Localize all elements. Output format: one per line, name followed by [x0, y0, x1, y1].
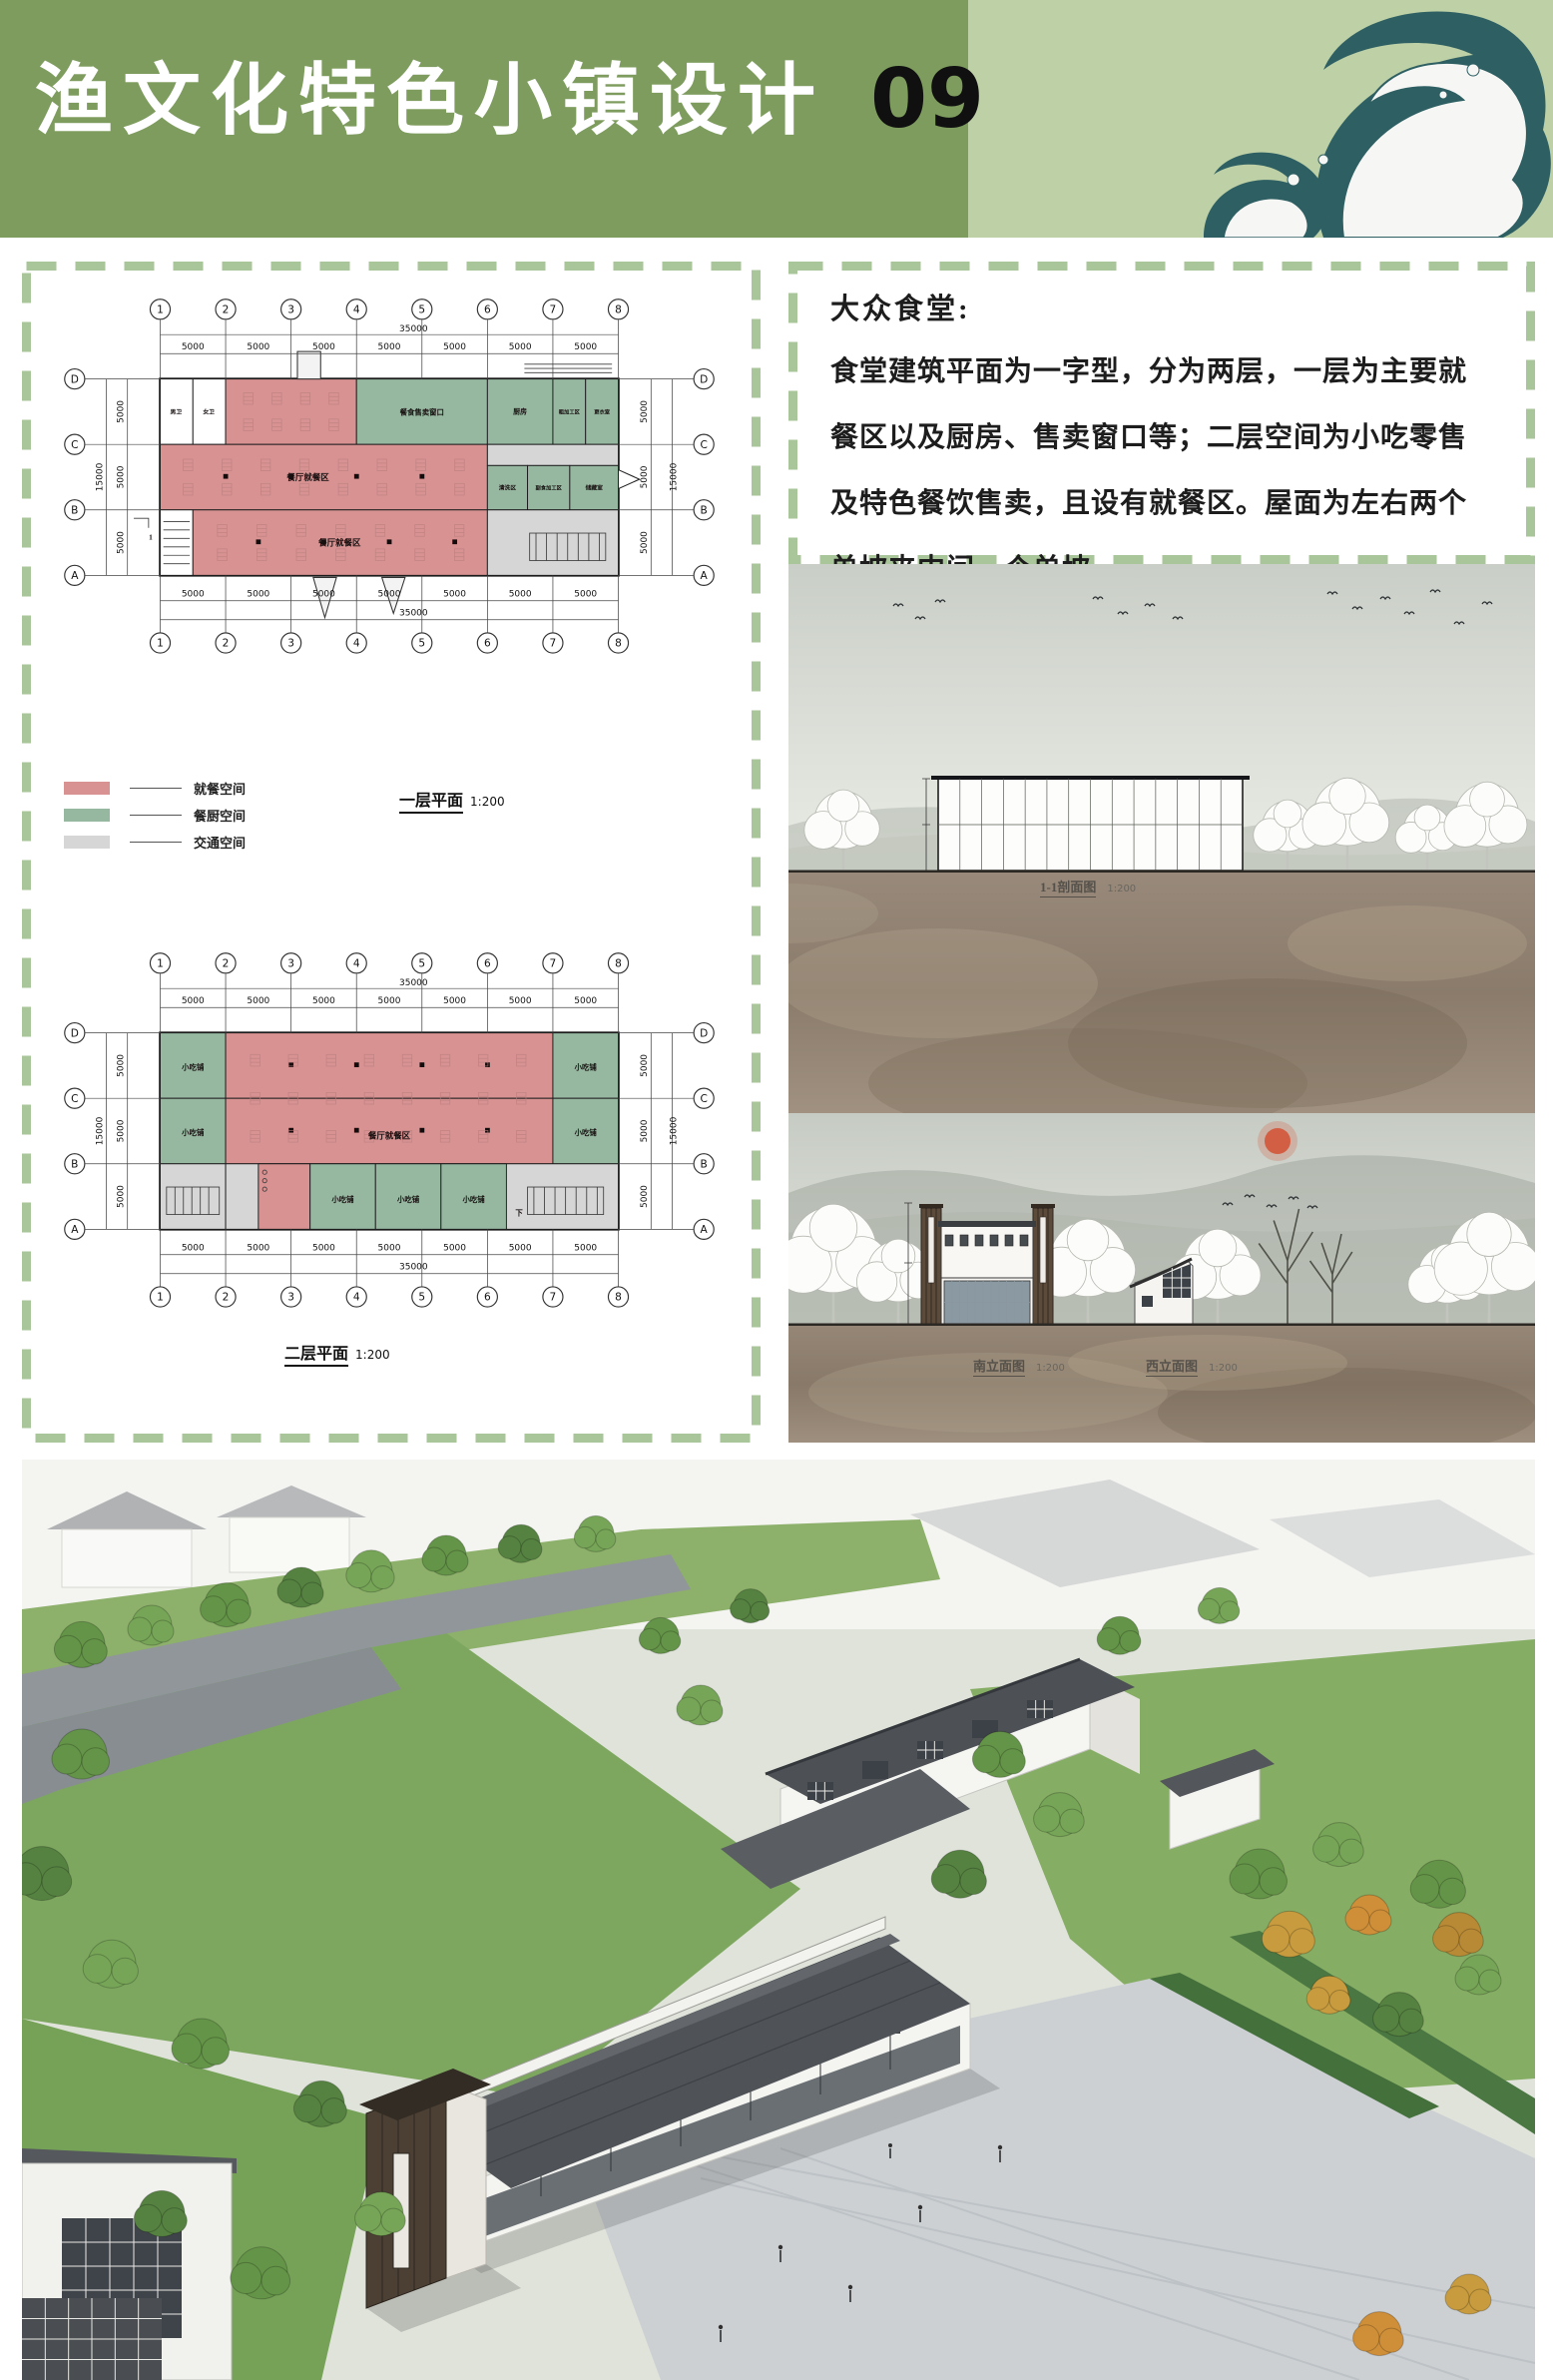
ellipse	[1288, 905, 1527, 981]
rect	[160, 1164, 226, 1230]
span: 西立面图	[1146, 1359, 1198, 1377]
page-number: 09	[870, 52, 984, 147]
dim-label: 5000	[312, 1243, 335, 1253]
grid-bubble-label: 4	[353, 638, 360, 650]
bottom-left-building	[22, 2148, 237, 2380]
grid-bubble-label: 6	[484, 304, 491, 316]
grid-bubble-label: D	[71, 1027, 79, 1039]
circle	[1353, 2325, 1379, 2351]
circle	[1290, 1929, 1314, 1954]
circle	[83, 1955, 112, 1984]
grid-bubble-label: D	[700, 373, 708, 385]
grid-bubble-label: 2	[223, 304, 230, 316]
wave-icon	[1124, 0, 1553, 238]
grid-bubble-label: 8	[615, 304, 622, 316]
total-dim-label: 15000	[95, 462, 105, 491]
circle	[778, 2245, 782, 2249]
dim-label: 5000	[443, 589, 466, 599]
grid-bubble-label: 6	[484, 958, 491, 970]
grid-bubble-label: 8	[615, 638, 622, 650]
circle	[261, 2266, 290, 2295]
circle	[1199, 1229, 1237, 1267]
circle	[128, 1617, 152, 1641]
text: 小吃铺	[396, 1195, 420, 1204]
circle	[998, 2145, 1002, 2149]
grid-bubble-label: B	[701, 1158, 708, 1170]
circle	[719, 2325, 723, 2329]
grid-bubble-label: 5	[418, 1292, 425, 1304]
circle	[596, 1529, 616, 1549]
dim-label: 5000	[509, 342, 532, 352]
circle	[1433, 1926, 1459, 1952]
legend-swatch-dining	[64, 782, 110, 795]
circle	[574, 1526, 596, 1548]
text: 副食加工区	[536, 484, 563, 492]
text: 小吃铺	[574, 1063, 598, 1072]
dim-label: 5000	[509, 996, 532, 1006]
rect	[230, 1517, 349, 1572]
ellipse	[788, 928, 1098, 1038]
circle	[521, 1538, 542, 1559]
circle	[661, 1631, 681, 1651]
span: 1:200	[1209, 1363, 1238, 1374]
dim-label: 5000	[312, 996, 335, 1006]
circle	[1439, 91, 1447, 99]
dim-label: 5000	[378, 342, 401, 352]
text: 女卫	[203, 408, 215, 416]
aerial-render	[22, 1460, 1535, 2380]
circle	[677, 1697, 701, 1721]
circle	[1034, 1806, 1060, 1832]
total-dim-label: 35000	[399, 978, 428, 988]
page-title: 渔文化特色小镇设计	[35, 38, 825, 150]
rect	[1031, 1204, 1055, 1208]
circle	[371, 1566, 394, 1589]
circle	[1288, 174, 1299, 186]
dim-label: 5000	[574, 996, 597, 1006]
span: 1:200	[1036, 1363, 1065, 1374]
description-heading: 大众食堂:	[830, 286, 1509, 327]
circle	[301, 1582, 323, 1604]
circle	[639, 1628, 661, 1650]
circle	[918, 2205, 922, 2209]
circle	[152, 1620, 174, 1642]
dim-label: 5000	[247, 342, 269, 352]
grid-bubble-label: A	[71, 570, 79, 582]
dim-label: 5000	[640, 1185, 650, 1208]
text: 餐食售卖窗口	[399, 408, 444, 417]
south-elevation-caption: 南立面图 1:200	[973, 1356, 1065, 1376]
span: 南立面图	[973, 1359, 1025, 1377]
rect	[938, 1221, 1036, 1227]
circle	[1067, 1219, 1109, 1261]
grid-bubble-label: 8	[615, 958, 622, 970]
dim-label: 5000	[247, 1243, 269, 1253]
legend-line	[130, 842, 182, 843]
dim-label: 5000	[312, 589, 335, 599]
total-dim-label: 35000	[399, 609, 428, 619]
circle	[1467, 64, 1479, 76]
grid-bubble-label: C	[700, 439, 707, 451]
section-mark	[134, 518, 149, 528]
circle	[498, 1536, 521, 1559]
circle	[1467, 1212, 1511, 1256]
legend-row: 就餐空间	[64, 779, 246, 798]
rect	[257, 539, 261, 544]
legend-label: 交通空间	[194, 833, 246, 852]
polygon	[446, 2083, 486, 2278]
grid-bubble-label: 5	[418, 304, 425, 316]
legend-row: 餐厨空间	[64, 806, 246, 825]
dim-label: 5000	[116, 465, 126, 488]
section-caption: 1-1剖面图 1:200	[1040, 877, 1136, 896]
circle	[1455, 1967, 1479, 1991]
grid-bubble-label: 2	[223, 638, 230, 650]
rect	[224, 474, 229, 479]
total-dim-label: 35000	[399, 324, 428, 334]
circle	[1230, 1864, 1260, 1894]
plan1-caption: 一层平面1:200	[399, 787, 505, 811]
circle	[1470, 782, 1505, 817]
dim-label: 5000	[509, 1243, 532, 1253]
text: 粗加工区	[559, 408, 581, 416]
rect	[1005, 1235, 1013, 1246]
rect	[1020, 1235, 1028, 1246]
circle	[1000, 1749, 1025, 1774]
rect	[387, 539, 392, 544]
rect	[226, 379, 356, 445]
circle	[1265, 1128, 1291, 1154]
circle	[1469, 2289, 1491, 2311]
rect	[941, 1225, 1033, 1278]
text: 更衣室	[593, 408, 611, 416]
grid-bubble-label: A	[701, 1224, 709, 1236]
dim-label: 5000	[574, 342, 597, 352]
circle	[201, 1596, 227, 1622]
circle	[848, 2285, 852, 2289]
circle	[202, 2038, 230, 2066]
rect	[960, 1235, 968, 1246]
entry-arrow	[619, 470, 640, 489]
grid-bubble-label: 5	[418, 638, 425, 650]
dim-label: 5000	[640, 1119, 650, 1142]
grid-bubble-label: 7	[550, 1292, 557, 1304]
circle	[1262, 1925, 1290, 1953]
circle	[1439, 1878, 1465, 1904]
text: 小吃铺	[462, 1195, 486, 1204]
building-section	[922, 778, 1250, 871]
circle	[1445, 2286, 1469, 2310]
dim-label: 5000	[378, 996, 401, 1006]
ramp-lines	[524, 364, 612, 372]
grid-bubble-label: 1	[157, 1292, 164, 1304]
grid-bubble-label: 4	[353, 1292, 360, 1304]
circle	[1329, 778, 1365, 814]
circle	[1198, 1598, 1220, 1620]
plan2-caption: 二层平面1:200	[284, 1340, 390, 1364]
rect	[990, 1235, 998, 1246]
grid-bubble-label: 4	[353, 304, 360, 316]
circle	[112, 1958, 138, 1984]
grid-bubble-label: 6	[484, 1292, 491, 1304]
grid-bubble-label: 7	[550, 958, 557, 970]
circle	[52, 1744, 82, 1774]
canopy-top	[297, 351, 320, 378]
south-elevation	[904, 1203, 1055, 1324]
grid-bubble-label: 7	[550, 638, 557, 650]
grid-bubble-label: 5	[418, 958, 425, 970]
circle	[231, 2262, 261, 2293]
rect	[1142, 1296, 1153, 1307]
legend-swatch-circulation	[64, 836, 110, 849]
legend-line	[130, 788, 182, 789]
dim-label: 5000	[116, 531, 126, 554]
legend-line	[130, 815, 182, 816]
rect	[452, 539, 457, 544]
rect	[354, 1062, 359, 1067]
circle	[227, 1599, 251, 1623]
circle	[1410, 1875, 1439, 1904]
legend-row: 交通空间	[64, 833, 246, 852]
rect	[487, 510, 618, 576]
span: 1-1剖面图	[1040, 880, 1096, 897]
grid-bubble-label: 3	[287, 958, 294, 970]
dim-label: 5000	[182, 342, 205, 352]
grid-bubble-label: 7	[550, 304, 557, 316]
grid-bubble-label: 1	[157, 638, 164, 650]
floor-plan-1: 1 男卫 女卫 餐食售卖窗口 厨房 粗加工区 更衣室 餐厅就餐区 清洗区 副食加…	[60, 295, 719, 662]
circle	[1329, 1990, 1350, 2011]
total-dim-label: 35000	[399, 1263, 428, 1273]
span: 1:200	[470, 795, 505, 809]
rect	[975, 1235, 983, 1246]
circle	[54, 1635, 82, 1663]
circle	[1339, 1839, 1363, 1863]
circle	[1399, 2009, 1423, 2033]
circle	[1345, 1907, 1369, 1931]
circle	[42, 1867, 72, 1897]
grid-bubble-label: C	[71, 439, 78, 451]
floor-plan-2: 小吃铺 小吃铺 小吃铺 小吃铺 小吃铺 小吃铺 小吃铺 餐厅就餐区 下 1150…	[60, 948, 719, 1316]
circle	[972, 1745, 1000, 1773]
circle	[172, 2034, 202, 2064]
circle	[1414, 805, 1440, 831]
grid-bubble-label: B	[71, 504, 78, 516]
circle	[1369, 1910, 1391, 1932]
circle	[931, 1865, 960, 1894]
text: 小吃铺	[330, 1195, 354, 1204]
grid-bubble-label: 3	[287, 638, 294, 650]
rect	[354, 1128, 359, 1133]
text: 下	[515, 1209, 523, 1218]
text: 储藏室	[584, 484, 603, 492]
circle	[731, 1599, 751, 1619]
circle	[881, 1239, 915, 1273]
text: 餐厅就餐区	[317, 538, 361, 548]
text: 1	[149, 532, 153, 541]
text: 小吃铺	[181, 1063, 205, 1072]
circle	[827, 790, 859, 822]
grid-bubble-label: A	[701, 570, 709, 582]
rect	[487, 444, 618, 465]
plan2-building: 小吃铺 小吃铺 小吃铺 小吃铺 小吃铺 小吃铺 小吃铺 餐厅就餐区 下	[160, 1033, 618, 1230]
dim-label: 5000	[312, 342, 335, 352]
circle	[82, 1748, 110, 1776]
grid-bubble-label: 6	[484, 638, 491, 650]
dim-label: 5000	[182, 589, 205, 599]
plan1-building: 1 男卫 女卫 餐食售卖窗口 厨房 粗加工区 更衣室 餐厅就餐区 清洗区 副食加…	[134, 351, 640, 618]
rect	[160, 510, 193, 576]
circle	[277, 1579, 301, 1603]
dim-label: 5000	[509, 589, 532, 599]
circle	[1379, 2328, 1403, 2352]
grid-bubble-label: 8	[615, 1292, 622, 1304]
circle	[355, 2205, 381, 2231]
dim-label: 5000	[443, 1243, 466, 1253]
circle	[1306, 1988, 1329, 2011]
rect	[919, 1204, 943, 1208]
dim-label: 5000	[640, 465, 650, 488]
grid-bubble-label: 1	[157, 958, 164, 970]
circle	[1097, 1628, 1120, 1651]
grid-bubble-label: 2	[223, 1292, 230, 1304]
description-line: 食堂建筑平面为一字型，分为两层，一层为主要就	[830, 349, 1509, 389]
section-render	[788, 564, 1535, 1113]
span: 二层平面	[284, 1346, 348, 1367]
circle	[1373, 2006, 1399, 2032]
circle	[293, 2094, 321, 2122]
circle	[1120, 1630, 1141, 1651]
rect	[226, 1033, 553, 1099]
span: 一层平面	[399, 793, 463, 814]
description-line: 及特色餐饮售卖，且设有就餐区。屋面为左右两个	[830, 481, 1509, 521]
circle	[751, 1601, 770, 1620]
circle	[1260, 1868, 1288, 1896]
dim-label: 5000	[574, 589, 597, 599]
text: 小吃铺	[181, 1128, 205, 1137]
circle	[1274, 800, 1301, 828]
dim-label: 5000	[640, 400, 650, 423]
span: 1:200	[355, 1348, 390, 1362]
dim-label: 5000	[443, 996, 466, 1006]
dim-label: 5000	[640, 531, 650, 554]
text: 餐厅就餐区	[367, 1130, 411, 1140]
dim-label: 5000	[378, 589, 401, 599]
west-elevation-caption: 西立面图 1:200	[1146, 1356, 1238, 1376]
grid-bubble-label: C	[71, 1093, 78, 1105]
circle	[1313, 1836, 1339, 1862]
rect	[945, 1235, 953, 1246]
text: 餐厅就餐区	[285, 472, 329, 482]
legend-label: 就餐空间	[194, 779, 246, 798]
grid-bubble-label: C	[700, 1093, 707, 1105]
circle	[134, 2204, 162, 2232]
dim-label: 5000	[247, 996, 269, 1006]
circle	[1459, 1929, 1483, 1953]
circle	[1318, 155, 1328, 165]
dim-label: 5000	[574, 1243, 597, 1253]
dim-label: 5000	[116, 1119, 126, 1142]
rect	[354, 474, 359, 479]
grid-bubble-label: B	[701, 504, 708, 516]
rect	[862, 1761, 888, 1779]
circle	[1479, 1970, 1501, 1992]
circle	[321, 2098, 346, 2123]
grid-bubble-label: 3	[287, 1292, 294, 1304]
dim-label: 5000	[116, 400, 126, 423]
circle	[809, 1204, 857, 1252]
grid-bubble-label: D	[71, 373, 79, 385]
dim-label: 5000	[443, 342, 466, 352]
grid-bubble-label: 4	[353, 958, 360, 970]
elevation-render	[788, 1113, 1535, 1443]
legend-swatch-kitchen	[64, 809, 110, 822]
circle	[162, 2208, 187, 2233]
rect	[419, 1062, 424, 1067]
span: 1:200	[1107, 884, 1136, 894]
circle	[422, 1547, 446, 1571]
grid-bubble-label: 2	[223, 958, 230, 970]
circle	[381, 2208, 405, 2232]
circle	[701, 1700, 723, 1722]
text: 男卫	[170, 408, 183, 416]
description-line: 餐区以及厨房、售卖窗口等；二层空间为小吃零售	[830, 415, 1509, 455]
dim-label: 5000	[640, 1054, 650, 1077]
text: 厨房	[513, 407, 527, 416]
poster-page: 渔文化特色小镇设计 09	[0, 0, 1553, 2380]
circle	[1060, 1809, 1084, 1833]
dim-label: 5000	[182, 996, 205, 1006]
legend: 就餐空间 餐厨空间 交通空间	[64, 779, 246, 860]
circle	[1220, 1601, 1240, 1621]
rect	[1040, 1217, 1046, 1283]
circle	[446, 1550, 468, 1572]
dim-label: 5000	[378, 1243, 401, 1253]
total-dim-label: 15000	[95, 1116, 105, 1145]
total-dim-label: 15000	[670, 1116, 680, 1145]
rect	[419, 1128, 424, 1133]
dim-label: 5000	[182, 1243, 205, 1253]
rect	[419, 474, 424, 479]
grid-bubble-label: B	[71, 1158, 78, 1170]
circle	[346, 1562, 371, 1587]
circle	[82, 1639, 107, 1664]
rect	[62, 1529, 192, 1587]
text: 清洗区	[499, 484, 517, 492]
grid-bubble-label: D	[700, 1027, 708, 1039]
dim-label: 5000	[116, 1054, 126, 1077]
total-dim-label: 15000	[670, 462, 680, 491]
rect	[928, 1217, 934, 1283]
legend-label: 餐厨空间	[194, 806, 246, 825]
circle	[888, 2143, 892, 2147]
text: 小吃铺	[574, 1128, 598, 1137]
grid-bubble-label: 3	[287, 304, 294, 316]
grid-bubble-label: 1	[157, 304, 164, 316]
dim-label: 5000	[247, 589, 269, 599]
circle	[960, 1868, 986, 1894]
dim-label: 5000	[116, 1185, 126, 1208]
grid-bubble-label: A	[71, 1224, 79, 1236]
